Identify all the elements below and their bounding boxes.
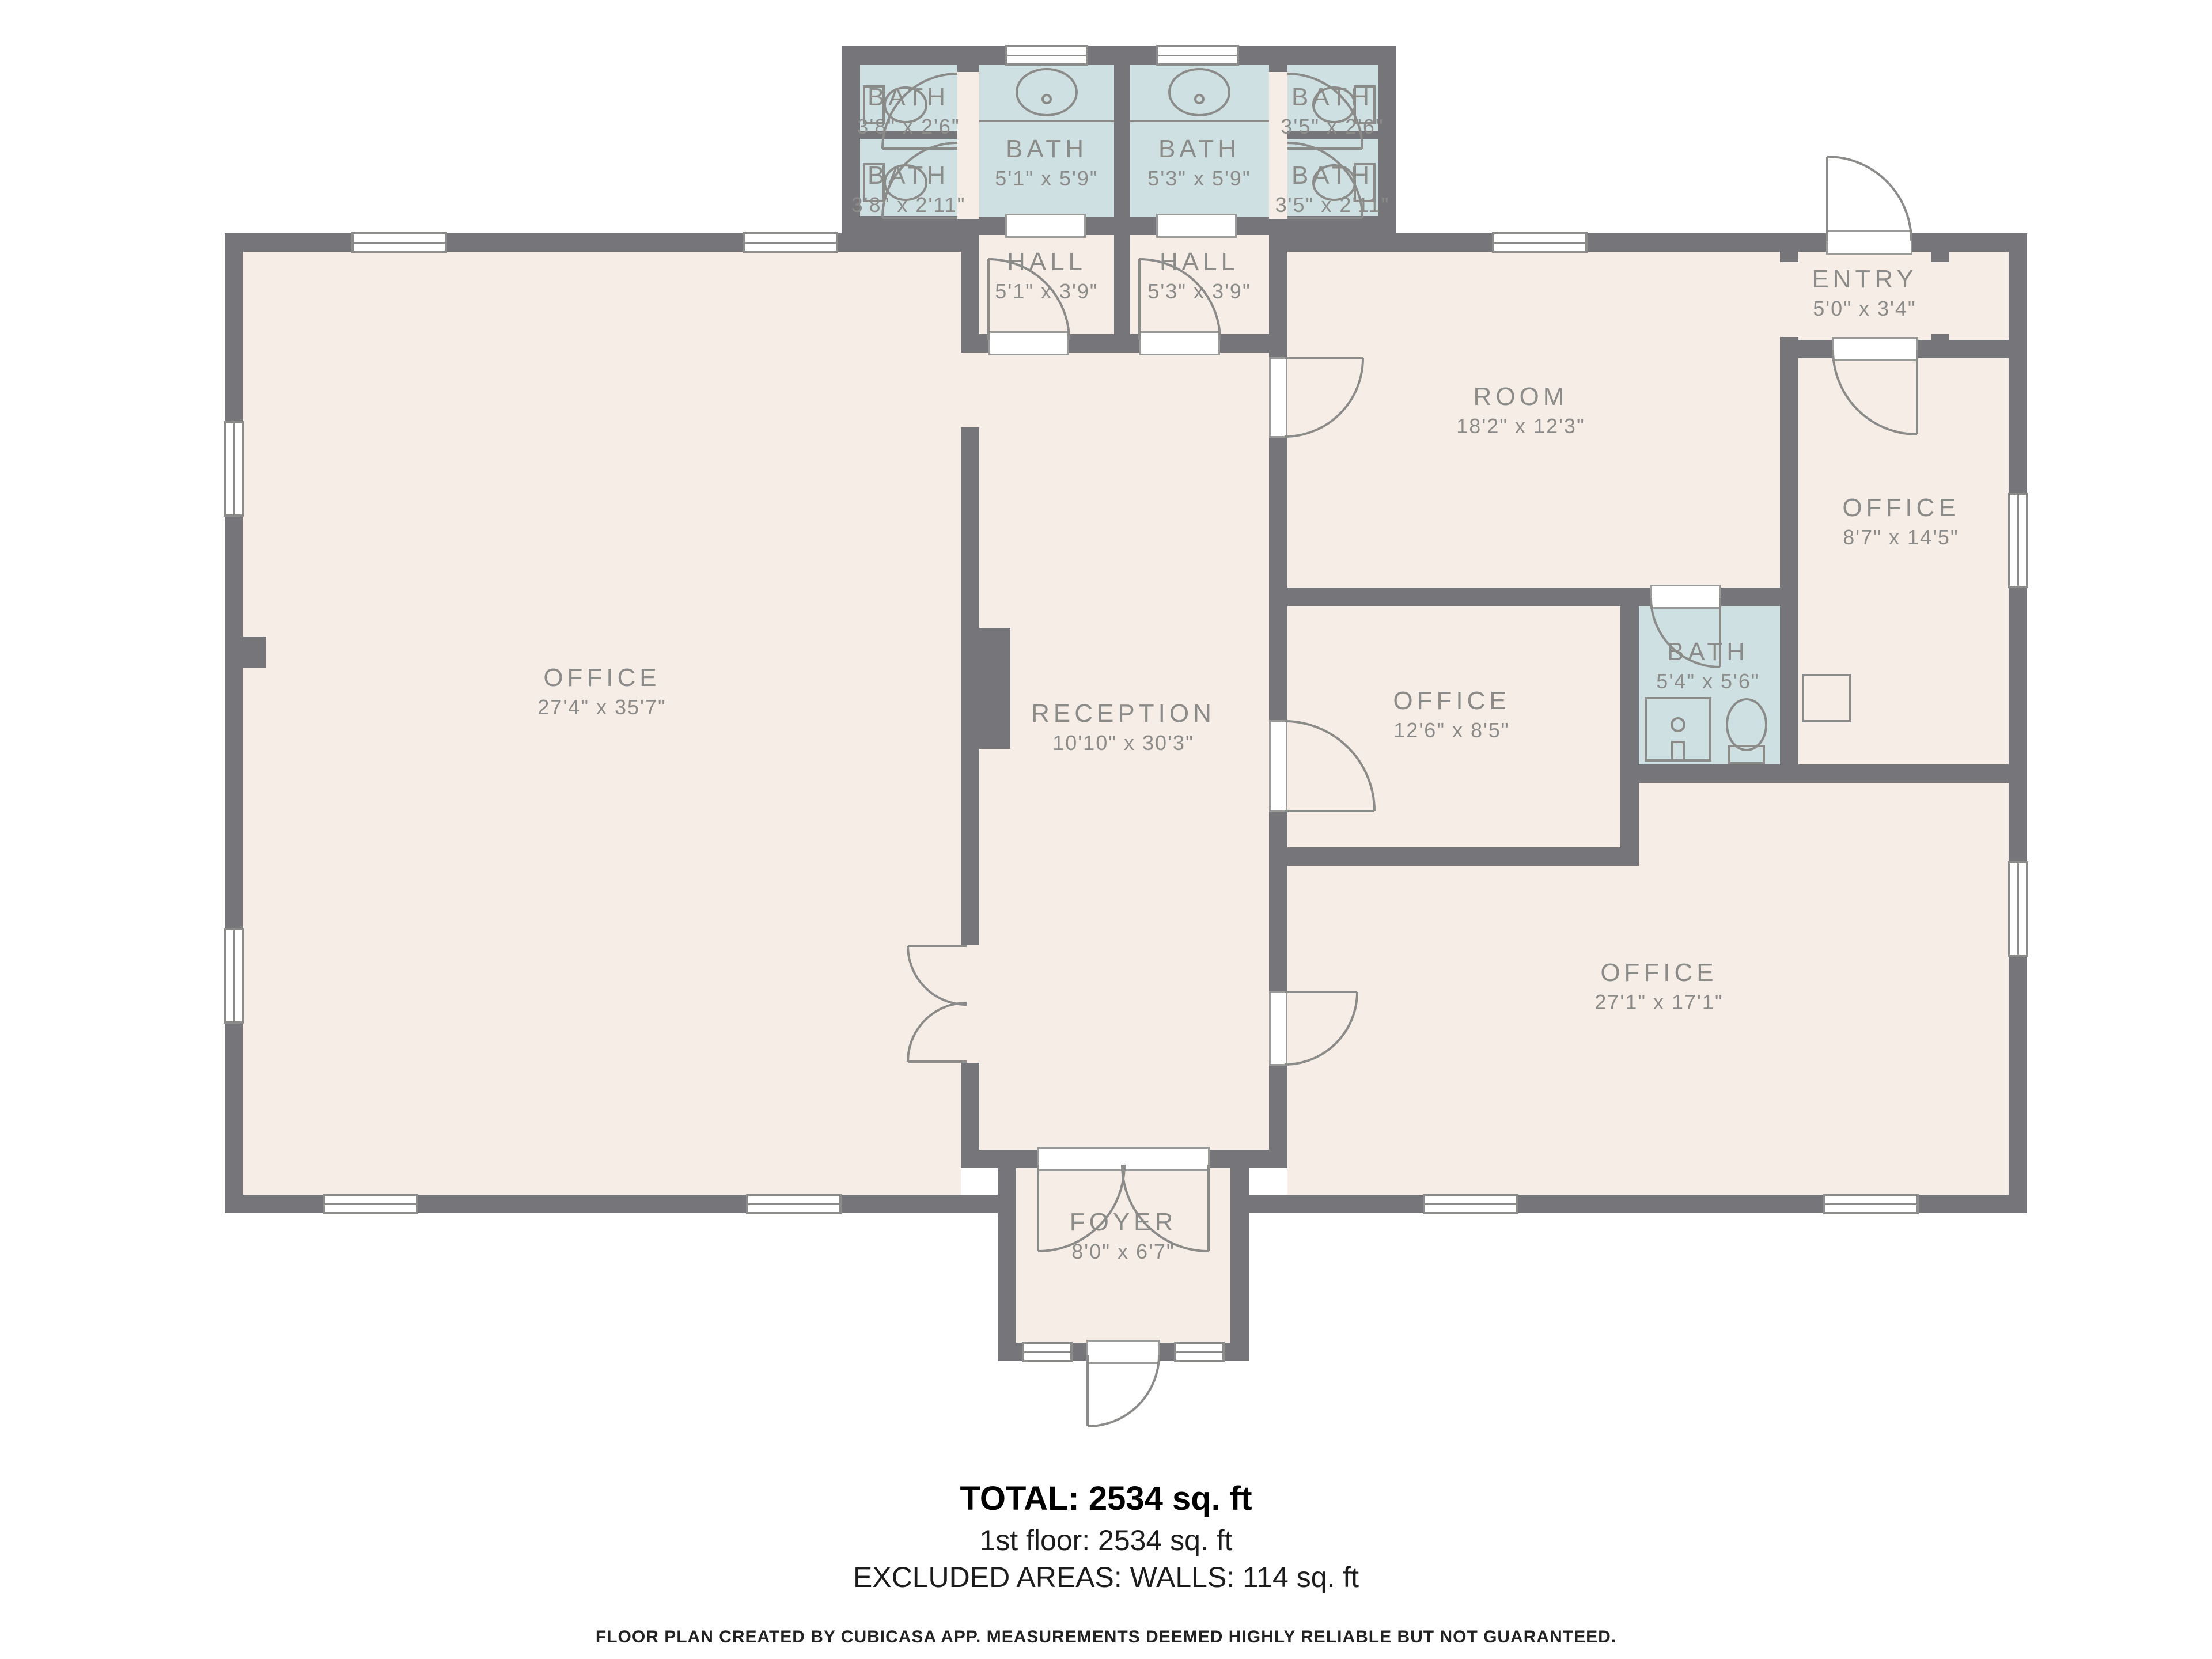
window-mullion: [1425, 1203, 1516, 1205]
window: [1005, 45, 1088, 66]
room-label-foyer: FOYER8'0" x 6'7": [1070, 1206, 1177, 1266]
total-area-text: TOTAL: 2534 sq. ft: [0, 1479, 2212, 1518]
window: [224, 421, 244, 517]
door-opening: [1037, 1147, 1210, 1171]
room-name: OFFICE: [1594, 956, 1723, 989]
door-opening: [1269, 991, 1287, 1066]
room-dimensions: 5'0" x 3'4": [1812, 296, 1917, 323]
room-label-office-right: OFFICE27'1" x 17'1": [1594, 956, 1723, 1016]
room-label-bath-54: BATH5'4" x 5'6": [1656, 635, 1759, 695]
room-dimensions: 5'3" x 5'9": [1147, 165, 1251, 192]
room-dimensions: 5'3" x 3'9": [1147, 278, 1251, 305]
room-dimensions: 27'4" x 35'7": [537, 694, 666, 721]
window: [323, 1194, 418, 1214]
room-name: BATH: [995, 132, 1098, 165]
window-mullion: [233, 930, 235, 1021]
wall-opening: [1931, 262, 1949, 334]
wall: [1269, 847, 1639, 866]
wall-opening: [961, 353, 979, 427]
wall-opening: [957, 72, 979, 147]
wall: [225, 233, 243, 1213]
room-dimensions: 3'5" x 2'6": [1281, 113, 1384, 141]
wall: [842, 46, 1396, 65]
door-opening: [1086, 1340, 1160, 1364]
wall: [1287, 588, 1798, 606]
door-opening: [1832, 337, 1918, 361]
wall: [961, 628, 1010, 749]
disclaimer-text: FLOOR PLAN CREATED BY CUBICASA APP. MEAS…: [0, 1627, 2212, 1647]
room-name: HALL: [995, 245, 1098, 278]
room-name: FOYER: [1070, 1206, 1177, 1238]
first-floor-area-text: 1st floor: 2534 sq. ft: [0, 1524, 2212, 1557]
room-office-left: [243, 252, 961, 1195]
window: [224, 928, 244, 1024]
room-label-office-mid: OFFICE12'6" x 8'5": [1393, 684, 1510, 744]
room-label-bath-bottom-left: BATH3'8" x 2'11": [851, 159, 966, 219]
wall: [961, 1063, 979, 1150]
door-opening: [1650, 585, 1721, 609]
room-name: BATH: [1281, 81, 1384, 113]
floor-plan: OFFICE27'4" x 35'7"RECEPTION10'10" x 30'…: [0, 0, 2212, 1659]
excluded-areas-text: EXCLUDED AREAS: WALLS: 114 sq. ft: [0, 1560, 2212, 1594]
room-name: BATH: [1656, 635, 1759, 668]
wall: [961, 1150, 1037, 1168]
room-dimensions: 3'5" x 2'11": [1275, 192, 1390, 219]
room-label-bath-center-right: BATH5'3" x 5'9": [1147, 132, 1251, 192]
room-label-hall-left: HALL5'1" x 3'9": [995, 245, 1098, 305]
window-mullion: [1158, 55, 1237, 56]
floor-plan-page: OFFICE27'4" x 35'7"RECEPTION10'10" x 30'…: [0, 0, 2212, 1659]
door-opening: [1826, 230, 1912, 255]
room-office-87: [1798, 358, 2009, 764]
window-mullion: [748, 1203, 839, 1205]
room-dimensions: 10'10" x 30'3": [1031, 730, 1215, 757]
room-name: BATH: [1147, 132, 1251, 165]
window-mullion: [354, 242, 445, 244]
room-label-bath-center-left: BATH5'1" x 5'9": [995, 132, 1098, 192]
wall: [1620, 606, 1639, 866]
room-dimensions: 8'0" x 6'7": [1070, 1238, 1177, 1266]
window-mullion: [325, 1203, 416, 1205]
door-opening: [1005, 214, 1086, 238]
door-opening: [1139, 331, 1220, 355]
window: [1156, 45, 1239, 66]
room-name: ROOM: [1456, 380, 1585, 413]
room-name: OFFICE: [1842, 491, 1959, 524]
door-swing: [1088, 1355, 1159, 1426]
window-mullion: [1825, 1203, 1916, 1205]
room-name: BATH: [857, 81, 960, 113]
wall: [998, 1168, 1016, 1361]
room-label-hall-right: HALL5'3" x 3'9": [1147, 245, 1251, 305]
room-dimensions: 3'8" x 2'6": [857, 113, 960, 141]
wall: [1396, 233, 2027, 252]
room-dimensions: 5'1" x 3'9": [995, 278, 1098, 305]
wall: [1230, 1168, 1249, 1361]
window-mullion: [1007, 55, 1086, 56]
room-label-office-87: OFFICE8'7" x 14'5": [1842, 491, 1959, 551]
window-mullion: [1176, 1351, 1222, 1353]
summary-block: TOTAL: 2534 sq. ft 1st floor: 2534 sq. f…: [0, 1479, 2212, 1647]
room-dimensions: 5'4" x 5'6": [1656, 668, 1759, 695]
wall: [1620, 764, 2009, 783]
room-dimensions: 27'1" x 17'1": [1594, 989, 1723, 1016]
room-label-bath-bottom-right: BATH3'5" x 2'11": [1275, 159, 1390, 219]
wall-opening: [961, 945, 979, 1063]
wall: [1114, 235, 1130, 334]
room-name: BATH: [851, 159, 966, 192]
room-name: HALL: [1147, 245, 1251, 278]
room-dimensions: 3'8" x 2'11": [851, 192, 966, 219]
door-opening: [1269, 720, 1287, 812]
wall: [1114, 65, 1130, 217]
window-mullion: [1494, 242, 1585, 244]
window-mullion: [745, 242, 836, 244]
door-opening: [1269, 357, 1287, 438]
window: [1022, 1342, 1073, 1362]
room-dimensions: 5'1" x 5'9": [995, 165, 1098, 192]
window: [2008, 861, 2028, 957]
room-label-bath-top-right: BATH3'5" x 2'6": [1281, 81, 1384, 141]
room-label-office-left: OFFICE27'4" x 35'7": [537, 661, 666, 721]
window: [1423, 1194, 1518, 1214]
wall-opening: [1780, 262, 1798, 337]
window-mullion: [1024, 1351, 1070, 1353]
window: [746, 1194, 842, 1214]
room-name: OFFICE: [537, 661, 666, 694]
window: [1492, 232, 1588, 253]
room-name: BATH: [1275, 159, 1390, 192]
room-dimensions: 18'2" x 12'3": [1456, 413, 1585, 440]
room-name: ENTRY: [1812, 263, 1917, 296]
door-swing: [1827, 157, 1911, 241]
window-mullion: [2017, 495, 2019, 586]
window-mullion: [233, 423, 235, 514]
room-label-entry: ENTRY5'0" x 3'4": [1812, 263, 1917, 323]
wall: [1210, 1150, 1287, 1168]
room-label-bath-top-left: BATH3'8" x 2'6": [857, 81, 960, 141]
wall: [1269, 216, 1396, 252]
wall: [961, 252, 979, 353]
room-label-room: ROOM18'2" x 12'3": [1456, 380, 1585, 440]
wall: [2009, 233, 2027, 1213]
room-name: OFFICE: [1393, 684, 1510, 717]
window: [351, 232, 447, 253]
wall: [243, 637, 266, 668]
window: [1823, 1194, 1919, 1214]
room-closet-top-right: [1949, 252, 2009, 340]
window: [2008, 493, 2028, 588]
door-opening: [988, 331, 1069, 355]
room-dimensions: 12'6" x 8'5": [1393, 717, 1510, 744]
window: [1174, 1342, 1225, 1362]
window-mullion: [2017, 863, 2019, 955]
room-label-reception: RECEPTION10'10" x 30'3": [1031, 697, 1215, 757]
door-opening: [1156, 214, 1237, 238]
room-name: RECEPTION: [1031, 697, 1215, 730]
window: [743, 232, 838, 253]
room-dimensions: 8'7" x 14'5": [1842, 524, 1959, 551]
